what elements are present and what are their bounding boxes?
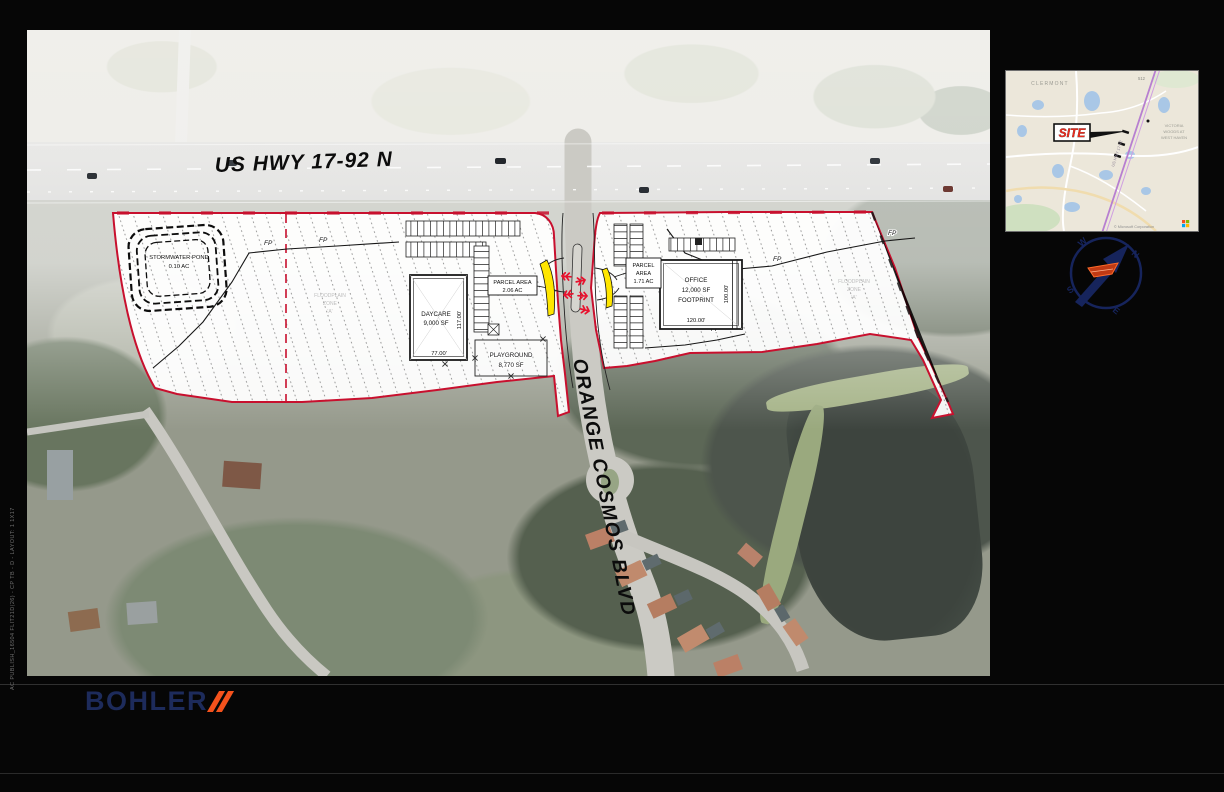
office-size: 12,000 SF xyxy=(682,287,711,294)
west-parcel-area-label: PARCEL AREA xyxy=(493,280,532,286)
highway-label: US HWY 17-92 N xyxy=(214,148,393,177)
plan-sheet: STORMWATER POND 0.10 AC FP FP FP FP FP F… xyxy=(0,0,1224,792)
compass-w: W xyxy=(1076,235,1089,248)
playground-size: 8,770 SF xyxy=(498,362,523,369)
stormwater-pond-label: STORMWATER POND xyxy=(149,255,208,261)
daycare-size: 9,000 SF xyxy=(423,320,448,327)
office-label: OFFICE xyxy=(685,277,708,284)
floodplain-note: FLOODPLAIN xyxy=(314,293,346,299)
stormwater-pond-acreage: 0.10 AC xyxy=(169,264,190,270)
office-width-dim: 120.00' xyxy=(687,318,706,324)
compass-center-mark xyxy=(1088,263,1118,277)
compass-rose: W N S E xyxy=(1061,228,1151,316)
inset-neighborhood-label: WEST HAVEN xyxy=(1161,135,1187,140)
east-parcel-area-label2: AREA xyxy=(636,271,652,277)
daycare-depth-dim: 117.00' xyxy=(457,311,463,329)
floodplain-note: FLOODPLAIN xyxy=(838,279,870,285)
inset-city-label: CLERMONT xyxy=(1031,81,1069,87)
median-island xyxy=(571,244,582,312)
floodplain-note: ZONE xyxy=(847,287,862,293)
titleblock-separator xyxy=(0,684,1224,685)
bohler-logo: BOHLER xyxy=(85,688,228,715)
east-parcel xyxy=(591,212,953,418)
playground-label: PLAYGROUND xyxy=(490,352,533,359)
office-footprint: FOOTPRINT xyxy=(678,297,714,304)
daycare-width-dim: 77.00' xyxy=(431,351,447,357)
east-parcel-area-label: PARCEL xyxy=(633,263,655,269)
inset-map-graphics: SITE CLERMONT VICTORIA WOODS AT WEST HAV… xyxy=(1006,71,1198,231)
inset-road-label: US HWY 17-92 xyxy=(1110,139,1123,167)
location-inset-map: SITE CLERMONT VICTORIA WOODS AT WEST HAV… xyxy=(1005,70,1199,232)
floodplain-note: ZONE xyxy=(323,301,338,307)
fp-marker: FP xyxy=(319,237,328,244)
floodplain-note: 'A' xyxy=(851,295,856,301)
west-parcel-area-value: 2.06 AC xyxy=(503,288,523,294)
floodplain-note: 'A' xyxy=(327,309,332,315)
highway-lane-markings xyxy=(27,143,990,203)
site-plan-map: STORMWATER POND 0.10 AC FP FP FP FP FP F… xyxy=(27,30,990,676)
fp-marker: FP xyxy=(773,256,782,263)
site-plan-linework: STORMWATER POND 0.10 AC FP FP FP FP FP F… xyxy=(27,30,990,676)
fp-marker: FP xyxy=(264,240,273,247)
sheet-bottom-border xyxy=(0,773,1224,774)
west-parcel xyxy=(113,213,569,416)
east-parcel-area-value: 1.71 AC xyxy=(634,279,654,285)
site-label: SITE xyxy=(1059,126,1087,140)
plot-stamp: AC PUBLISH_16504 FLIT21D(26) - CP TB - D… xyxy=(10,507,16,690)
inset-neighborhood-label: VICTORIA xyxy=(1165,123,1184,128)
bohler-wordmark: BOHLER xyxy=(85,688,208,715)
daycare-label: DAYCARE xyxy=(421,311,450,318)
fp-marker: FP xyxy=(888,230,897,237)
inset-toll-road xyxy=(1102,71,1160,231)
office-depth-dim: 100.00' xyxy=(724,285,730,304)
bing-logo xyxy=(1182,220,1189,227)
inset-neighborhood-label: WOODS AT xyxy=(1163,129,1185,134)
inset-corner-label: 512 xyxy=(1138,76,1146,81)
